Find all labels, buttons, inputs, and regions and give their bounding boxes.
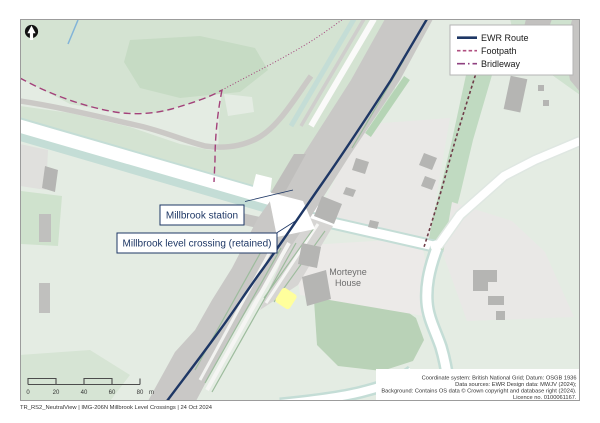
svg-text:Morteyne: Morteyne xyxy=(329,267,367,277)
svg-text:Background: Contains OS data ©: Background: Contains OS data © Crown cop… xyxy=(381,387,577,394)
svg-text:House: House xyxy=(335,278,361,288)
svg-text:m: m xyxy=(149,390,154,396)
svg-text:Millbrook level crossing (reta: Millbrook level crossing (retained) xyxy=(123,239,272,250)
svg-text:60: 60 xyxy=(109,390,116,396)
svg-text:40: 40 xyxy=(81,390,88,396)
svg-text:Data sources: EWR Design data:: Data sources: EWR Design data: MWJV (202… xyxy=(455,382,577,388)
svg-text:Bridleway: Bridleway xyxy=(481,59,521,69)
svg-text:Footpath: Footpath xyxy=(481,46,517,56)
svg-text:EWR Route: EWR Route xyxy=(481,33,529,43)
svg-text:Coordinate system: British Nat: Coordinate system: British National Grid… xyxy=(422,375,577,381)
svg-text:20: 20 xyxy=(53,390,60,396)
svg-text:Millbrook station: Millbrook station xyxy=(166,211,238,222)
svg-text:80: 80 xyxy=(137,390,144,396)
svg-text:Licence no. 0100061167.: Licence no. 0100061167. xyxy=(513,395,577,401)
